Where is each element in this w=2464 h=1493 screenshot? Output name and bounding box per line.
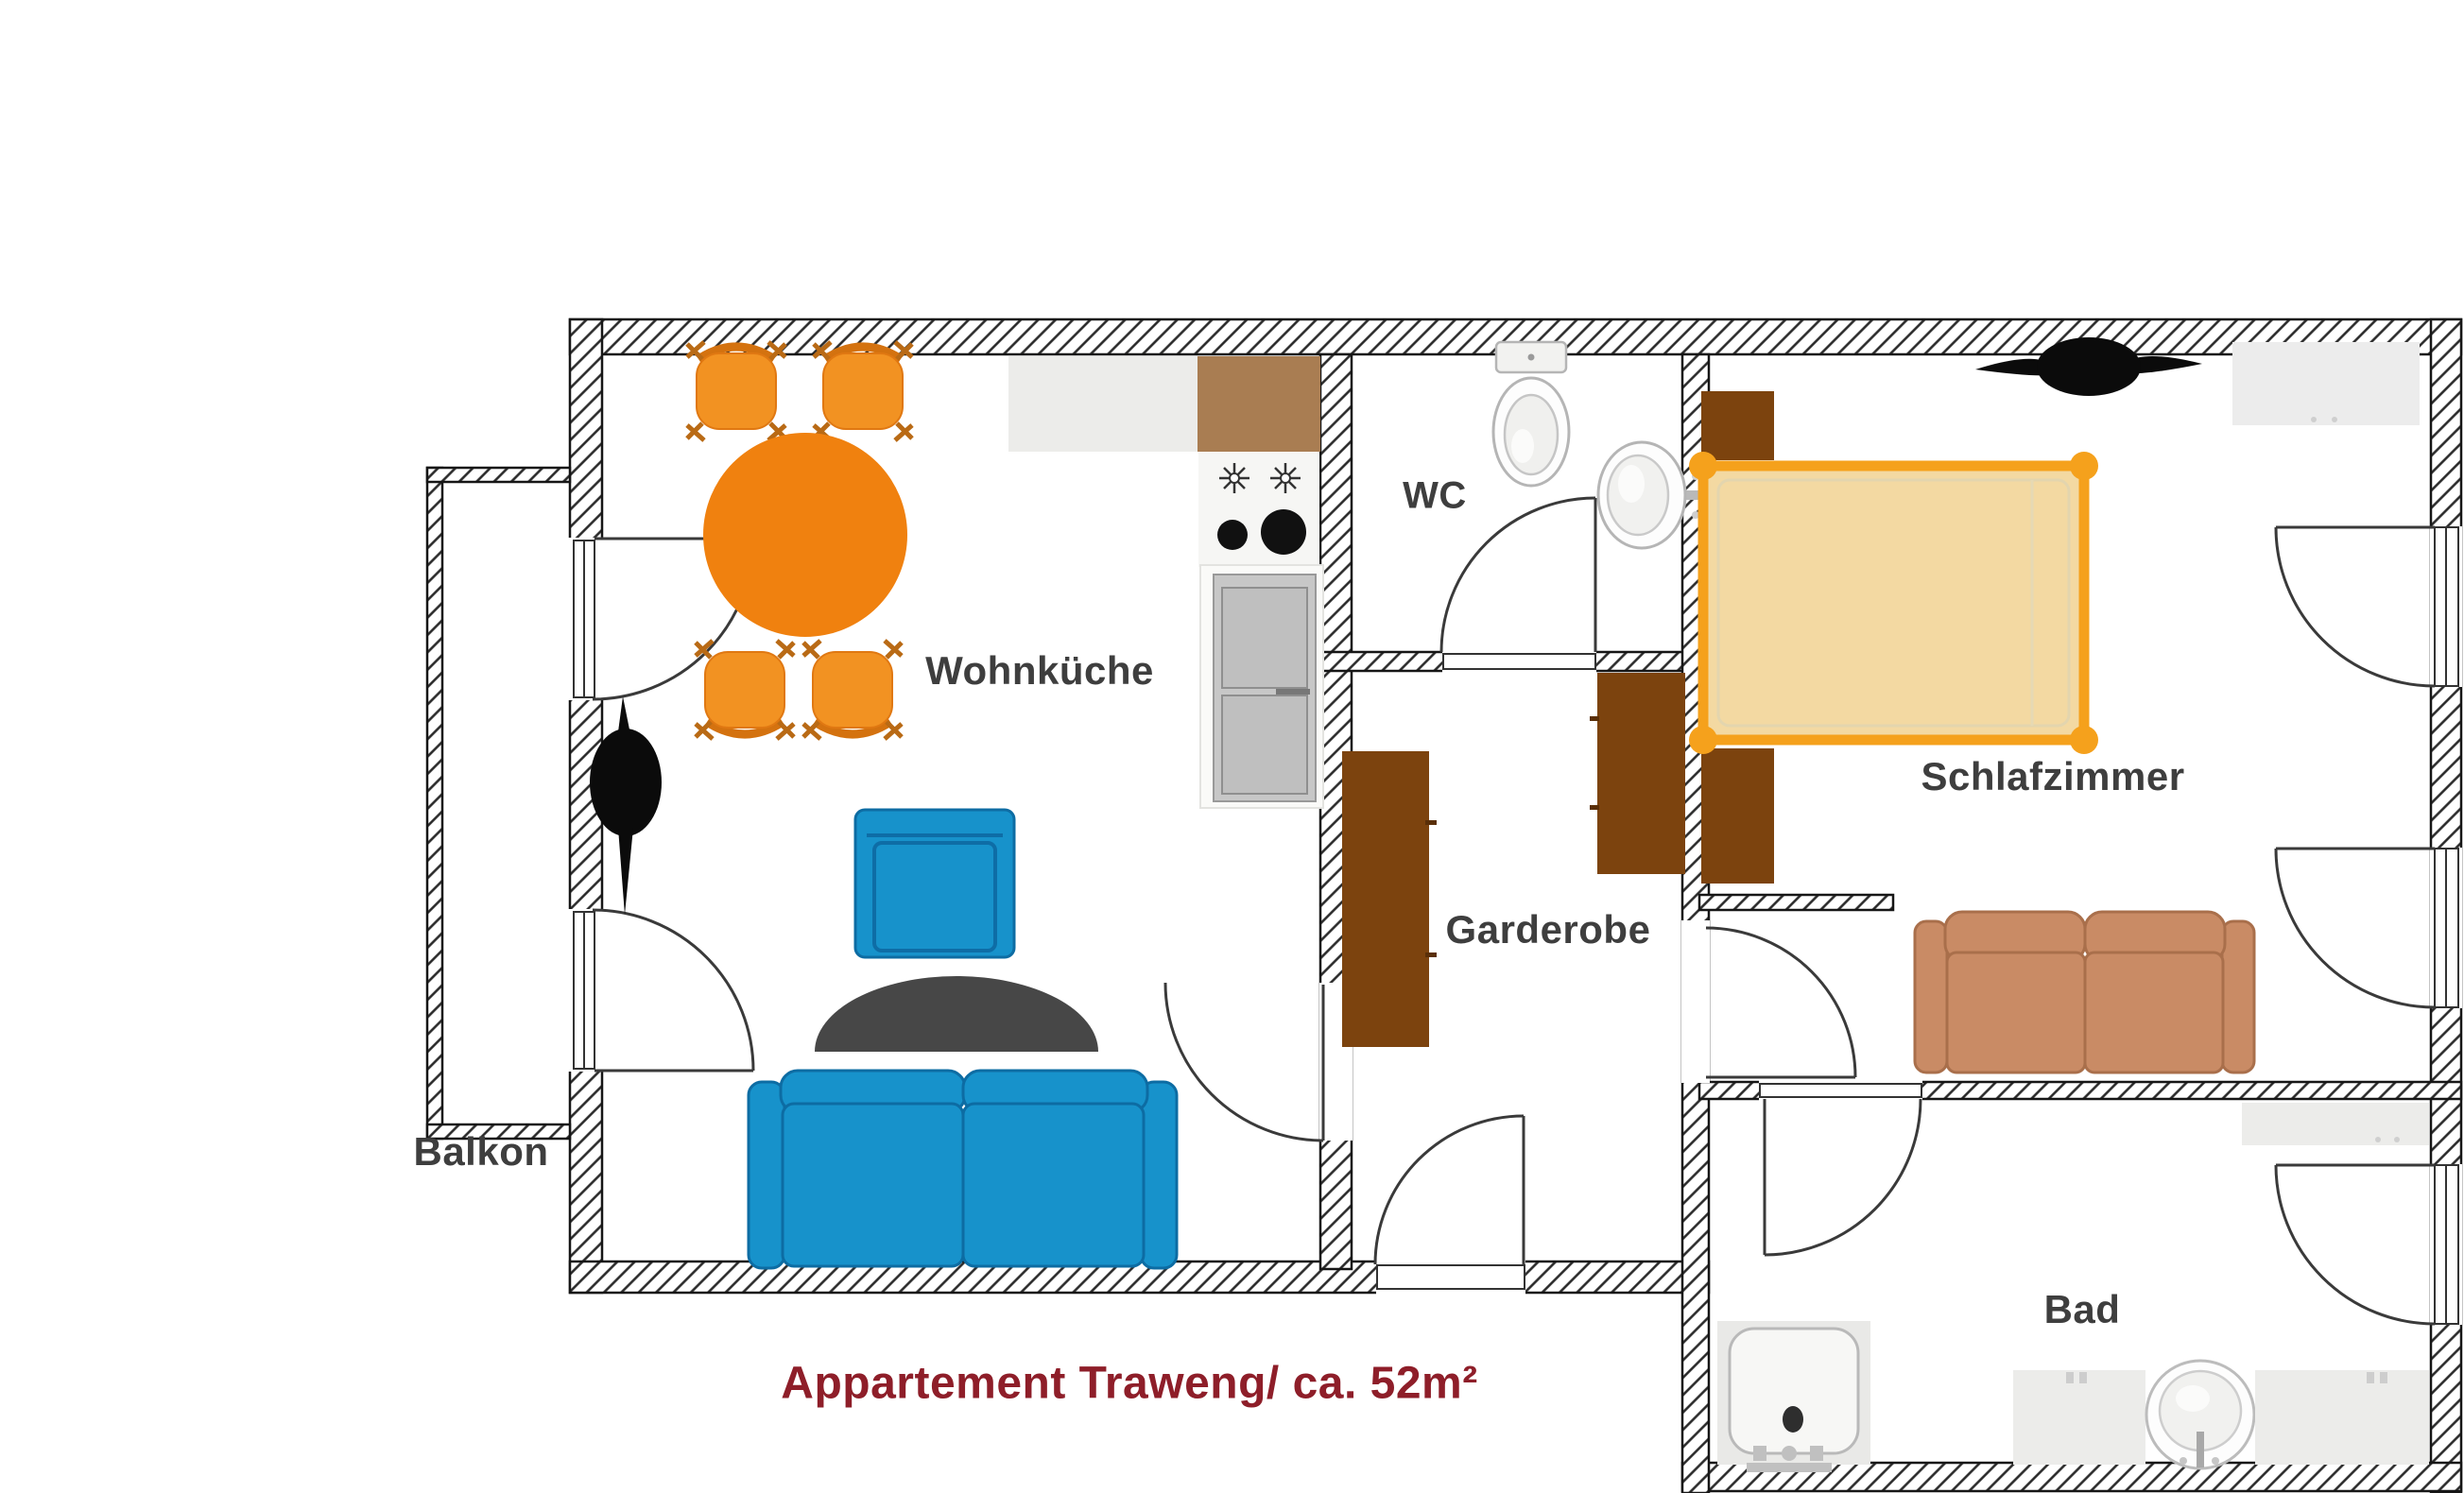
floor-plan: Wohnküche WC Garderobe Schlafzimmer Bad … [0,0,2464,1493]
nightstand-bottom [1701,748,1774,884]
door-entrance [1375,1116,1524,1264]
sofa [749,1071,1177,1268]
armchair [855,810,1014,957]
garderobe-room [1342,673,1685,1047]
living-area [590,696,1177,1268]
door-schlafzimmer [1706,928,1855,1077]
balcony-door-lower [593,910,753,1071]
entrance-threshold [1377,1265,1525,1289]
wardrobe-left [1342,751,1429,1047]
door-wc [1441,498,1595,652]
wall-bottom-left [570,1261,1709,1293]
dining-chair [696,641,794,739]
bedroom-window-door-1 [2276,527,2435,686]
label-balkon: Balkon [413,1129,548,1175]
kitchen-counter [1008,356,1198,452]
fridge-door-upper [1222,588,1307,688]
floorplan-svg [0,0,2464,1493]
wall-bedroom-spur [1699,895,1893,910]
bad-threshold [1760,1084,1921,1097]
kitchen-corner-cabinet [1198,356,1320,452]
bath-counter-left [2013,1370,2145,1465]
wall-balcony-left [427,468,442,1139]
dining-table [703,433,907,637]
wc-threshold [1443,654,1595,669]
label-garderobe: Garderobe [1446,907,1651,952]
door-bad [1765,1099,1921,1255]
burner-small [1217,520,1248,550]
toilet-icon [1493,342,1569,486]
fridge-door-lower [1222,695,1307,794]
dining-chair [803,641,902,739]
bedroom-closet [2232,342,2420,425]
bathroom-sink-icon [2146,1361,2254,1468]
wall-balcony-top [427,468,570,482]
wc-room [1493,342,1705,548]
label-wc: WC [1403,475,1467,518]
bathtub-drain [1783,1406,1803,1433]
bathtub [1717,1321,1870,1472]
wardrobe-right [1597,673,1685,874]
label-schlafzimmer: Schlafzimmer [1921,754,2184,799]
dining-set [687,342,912,739]
schlafzimmer-room [1689,337,2420,1073]
label-wohnkueche: Wohnküche [925,648,1154,694]
bad-window-door [2276,1165,2435,1324]
fridge-handle [1276,689,1310,695]
loveseat [1915,912,2254,1073]
burner-large [1261,509,1306,555]
bath-shelf [2242,1103,2429,1145]
label-bad: Bad [2044,1287,2121,1332]
dining-chair [814,342,912,440]
dining-chair [687,342,785,440]
stove [1198,452,1319,567]
door-livingroom-garderobe [1165,983,1323,1141]
page-title: Appartement Traweng/ ca. 52m² [781,1358,1477,1410]
double-bed [1689,452,2098,754]
bedroom-window-door-2 [2276,849,2435,1007]
rug [815,976,1098,1052]
nightstand-top [1701,391,1774,460]
bath-counter-right [2255,1370,2429,1465]
kitchen [1008,356,1323,808]
